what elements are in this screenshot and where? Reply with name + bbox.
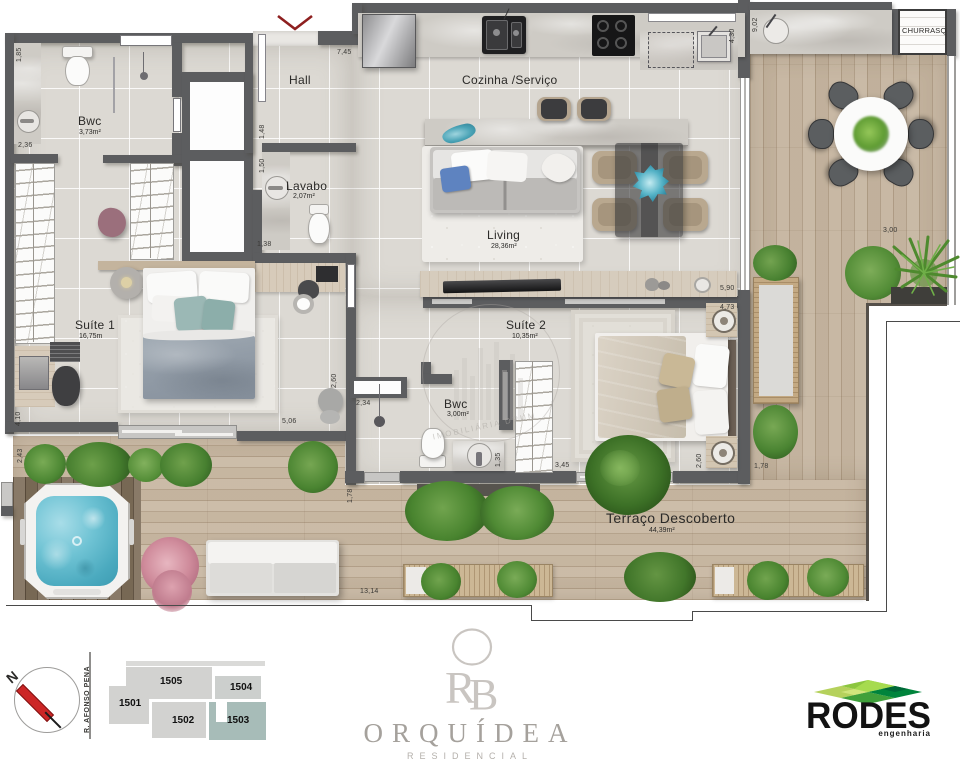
svg-text:B: B bbox=[469, 670, 498, 718]
